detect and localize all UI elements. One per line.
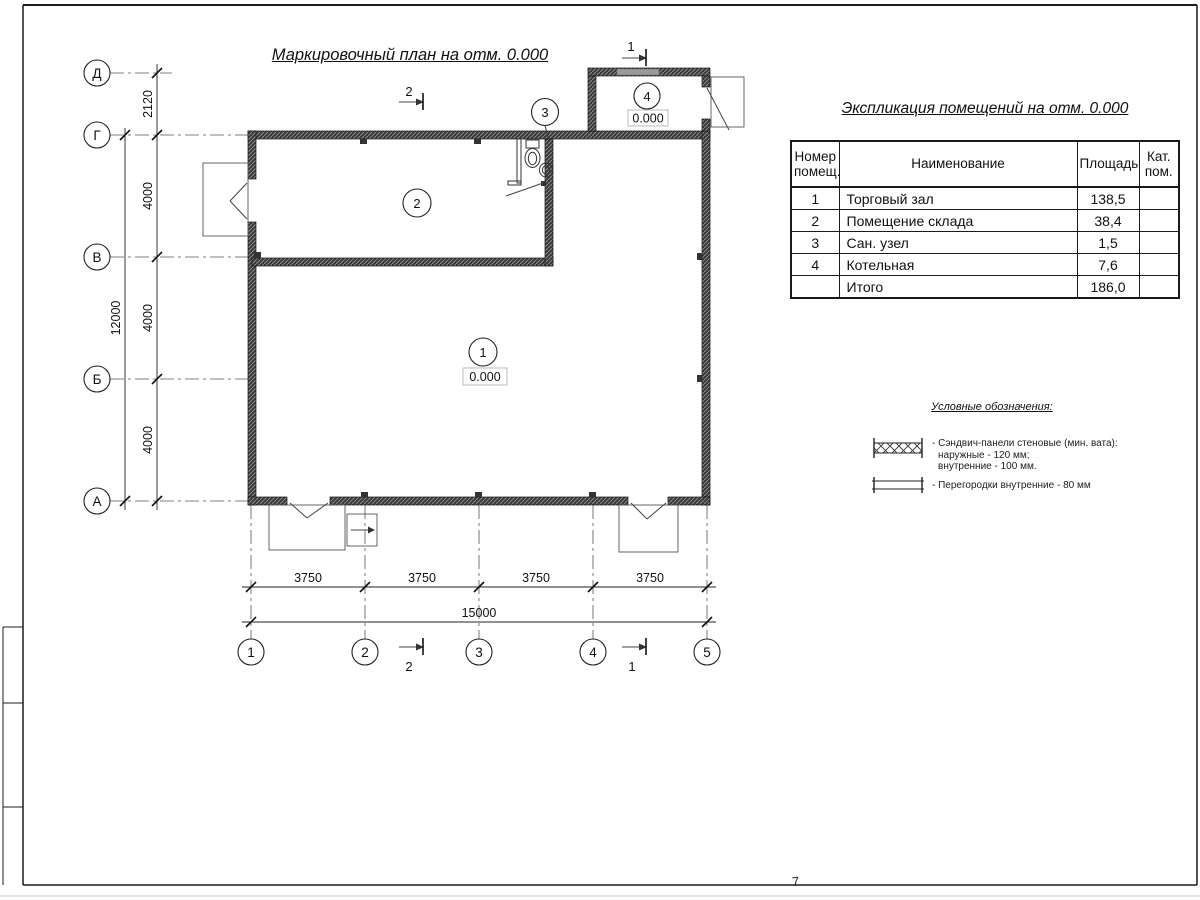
axis-label-D: Д [92, 66, 101, 81]
axis-grid-lines [110, 73, 707, 639]
axis-label-G: Г [93, 128, 101, 143]
porch-bottom-right [619, 505, 678, 552]
doors-and-porches [203, 77, 744, 552]
axis-markers-left: Д Г В Б А [84, 60, 110, 514]
legend-title: Условные обозначения: [917, 401, 1067, 413]
room-4-number: 4 [643, 89, 650, 104]
table-title: Экспликация помещений на отм. 0.000 [790, 100, 1180, 118]
axis-markers-bottom: 1 2 3 4 5 [238, 639, 720, 665]
porch-bottom-left [269, 505, 345, 550]
sandwich-panel-hatch-icon [872, 437, 924, 459]
header-room-area: Площадь [1077, 141, 1139, 187]
dim-bottom-3: 3750 [522, 571, 550, 585]
table-header-row: Номер помещ. Наименование Площадь Кат. п… [791, 141, 1179, 187]
room-1-elevation: 0.000 [469, 370, 500, 384]
dim-left-total: 12000 [109, 301, 123, 336]
dim-bottom-total: 15000 [462, 606, 497, 620]
internal-partition-icon [872, 476, 924, 494]
annex-window [617, 69, 659, 75]
legend-item-partitions: - Перегородки внутренние - 80 мм [932, 480, 1091, 492]
porch-left [203, 163, 248, 236]
room-labels: 1 0.000 2 3 4 0.000 [403, 83, 668, 385]
table-total-row: Итого 186,0 [791, 276, 1179, 299]
partition-room2 [252, 258, 553, 266]
dim-left-2: 4000 [141, 182, 155, 210]
partition-toilet-right [545, 139, 553, 266]
dim-left-4: 4000 [141, 426, 155, 454]
axis-label-1: 1 [247, 645, 255, 660]
plan-title: Маркировочный план на отм. 0.000 [245, 46, 575, 65]
dim-left-3: 4000 [141, 304, 155, 332]
toilet-partition-thin [517, 139, 521, 183]
dim-bottom-4: 3750 [636, 571, 664, 585]
table-row: 1 Торговый зал 138,5 [791, 187, 1179, 210]
dim-bottom-2: 3750 [408, 571, 436, 585]
axis-label-4: 4 [589, 645, 597, 660]
table-row: 2 Помещение склада 38,4 [791, 210, 1179, 232]
section-2-bottom-label: 2 [405, 659, 412, 674]
toilet-icon [526, 140, 539, 148]
dimension-lines [120, 64, 716, 627]
axis-label-A: А [92, 494, 101, 509]
room-schedule-table: Номер помещ. Наименование Площадь Кат. п… [790, 140, 1180, 299]
section-2-top-label: 2 [405, 84, 412, 99]
room-1-number: 1 [479, 345, 486, 360]
room-3-number: 3 [541, 105, 548, 120]
room-2-number: 2 [413, 196, 420, 211]
table-row: 3 Сан. узел 1,5 [791, 232, 1179, 254]
dim-bottom-1: 3750 [294, 571, 322, 585]
dimension-labels: 2120 4000 4000 4000 12000 3750 3750 3750… [109, 90, 664, 620]
drawing-sheet: 2120 4000 4000 4000 12000 3750 3750 3750… [0, 0, 1200, 900]
header-room-name: Наименование [839, 141, 1077, 187]
dim-left-1: 2120 [141, 90, 155, 118]
axis-label-V: В [92, 250, 101, 265]
axis-label-B: Б [93, 372, 102, 387]
page-number: 7 [791, 874, 800, 890]
header-room-number: Номер помещ. [791, 141, 839, 187]
building-walls [248, 68, 710, 505]
room-4-elevation: 0.000 [632, 112, 663, 126]
header-room-category: Кат. пом. [1139, 141, 1179, 187]
axis-label-5: 5 [703, 645, 711, 660]
table-row: 4 Котельная 7,6 [791, 254, 1179, 276]
axis-label-3: 3 [475, 645, 483, 660]
section-1-bottom-label: 1 [628, 659, 635, 674]
legend-item-sandwich-panels: - Сэндвич-панели стеновые (мин. вата): н… [932, 438, 1118, 473]
porch-annex [711, 77, 744, 127]
section-1-top-label: 1 [627, 39, 634, 54]
axis-label-2: 2 [361, 645, 369, 660]
